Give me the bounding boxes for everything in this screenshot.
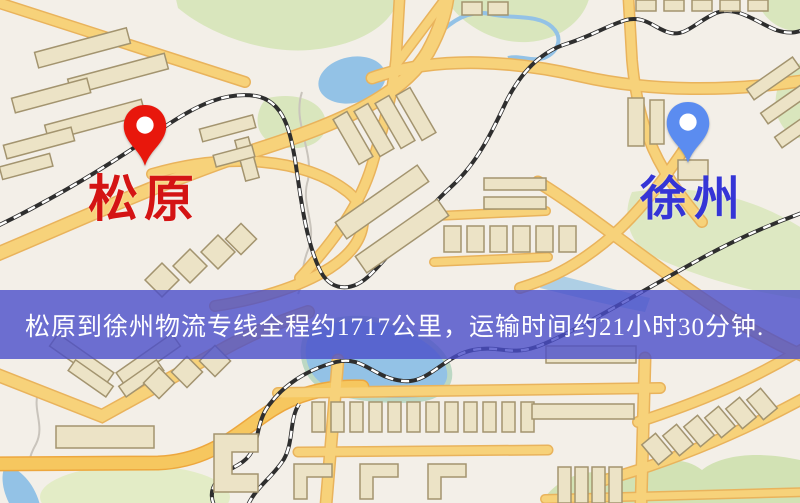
red-location-pin-icon — [122, 103, 168, 169]
origin-label: 松原 — [88, 174, 200, 224]
destination-label: 徐州 — [640, 177, 746, 224]
origin-pin[interactable] — [122, 103, 168, 169]
destination-pin[interactable] — [665, 99, 711, 167]
blue-location-pin-icon — [665, 99, 711, 167]
route-summary-text: 松原到徐州物流专线全程约1717公里，运输时间约21小时30分钟. — [25, 307, 764, 343]
map-background — [0, 0, 800, 503]
map-screenshot: 松原 徐州 松原到徐州物流专线全程约1717公里，运输时间约21小时30分钟. — [0, 0, 800, 503]
info-banner: 松原到徐州物流专线全程约1717公里，运输时间约21小时30分钟. — [0, 290, 800, 359]
